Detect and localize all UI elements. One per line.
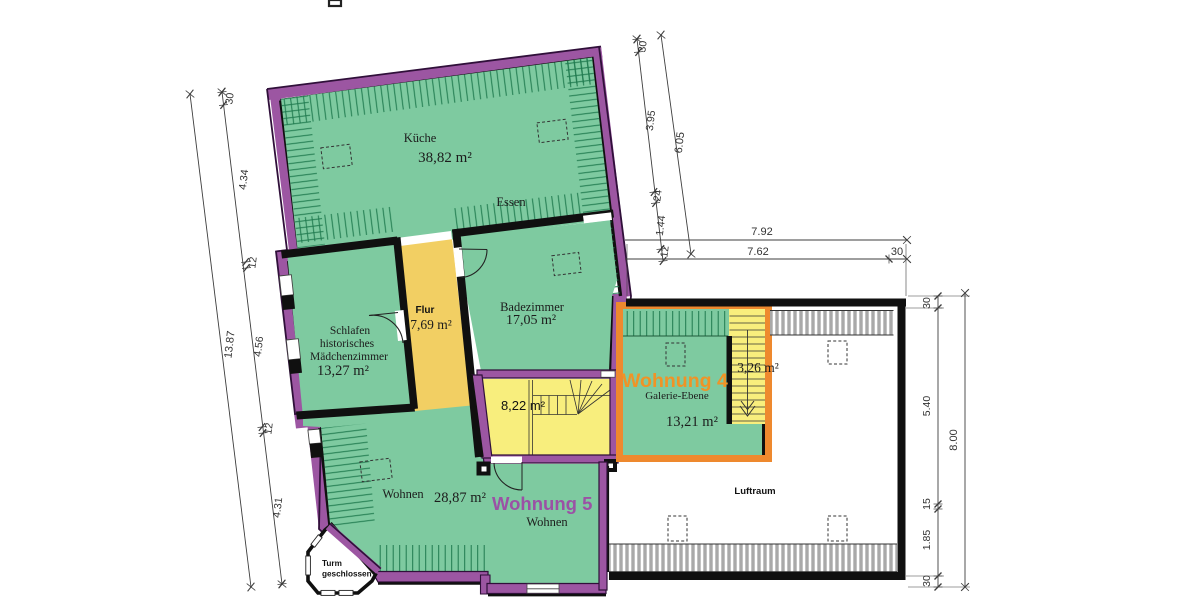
svg-text:8.00: 8.00	[948, 429, 960, 450]
svg-text:7,69 m²: 7,69 m²	[410, 317, 452, 332]
svg-text:30: 30	[891, 246, 903, 258]
svg-text:3.95: 3.95	[644, 110, 658, 132]
svg-text:13,21 m²: 13,21 m²	[666, 414, 719, 430]
svg-text:4.56: 4.56	[252, 336, 266, 358]
svg-text:38,82 m²: 38,82 m²	[418, 150, 472, 166]
svg-text:24: 24	[651, 189, 664, 202]
svg-text:Essen: Essen	[496, 195, 526, 209]
svg-text:Wohnung 5: Wohnung 5	[492, 493, 592, 514]
svg-text:7.62: 7.62	[747, 246, 768, 258]
svg-text:7.92: 7.92	[751, 226, 772, 238]
svg-text:historisches: historisches	[320, 338, 375, 350]
svg-text:8,22 m²: 8,22 m²	[501, 398, 546, 413]
svg-text:Wohnen: Wohnen	[526, 515, 568, 529]
svg-text:12: 12	[246, 256, 259, 269]
svg-text:Küche: Küche	[404, 131, 437, 145]
svg-text:4.31: 4.31	[271, 497, 285, 519]
svg-text:Flur: Flur	[416, 305, 435, 316]
svg-text:Wohnen: Wohnen	[382, 487, 424, 501]
svg-text:4.34: 4.34	[237, 169, 251, 191]
svg-text:30: 30	[921, 575, 933, 587]
svg-text:15: 15	[921, 498, 933, 510]
svg-text:Turm: Turm	[322, 559, 342, 568]
svg-text:geschlossen: geschlossen	[322, 570, 372, 579]
svg-text:30: 30	[921, 297, 933, 309]
svg-text:1.85: 1.85	[921, 530, 933, 551]
svg-text:Wohnung 4: Wohnung 4	[622, 370, 728, 392]
svg-text:30: 30	[223, 92, 236, 105]
svg-text:12: 12	[658, 245, 671, 258]
svg-text:Mädchenzimmer: Mädchenzimmer	[310, 351, 388, 363]
svg-text:Badezimmer: Badezimmer	[500, 300, 565, 314]
svg-text:1.44: 1.44	[654, 215, 668, 237]
svg-text:5.40: 5.40	[921, 396, 933, 417]
svg-text:Galerie-Ebene: Galerie-Ebene	[645, 390, 709, 402]
svg-text:Luftraum: Luftraum	[734, 486, 775, 497]
svg-text:Schlafen: Schlafen	[330, 325, 370, 337]
svg-text:3,26 m²: 3,26 m²	[737, 360, 779, 375]
svg-text:30: 30	[636, 40, 649, 53]
svg-text:12: 12	[262, 422, 275, 435]
svg-text:28,87 m²: 28,87 m²	[434, 490, 487, 506]
svg-text:13,27 m²: 13,27 m²	[317, 363, 370, 379]
svg-text:17,05 m²: 17,05 m²	[506, 313, 556, 328]
